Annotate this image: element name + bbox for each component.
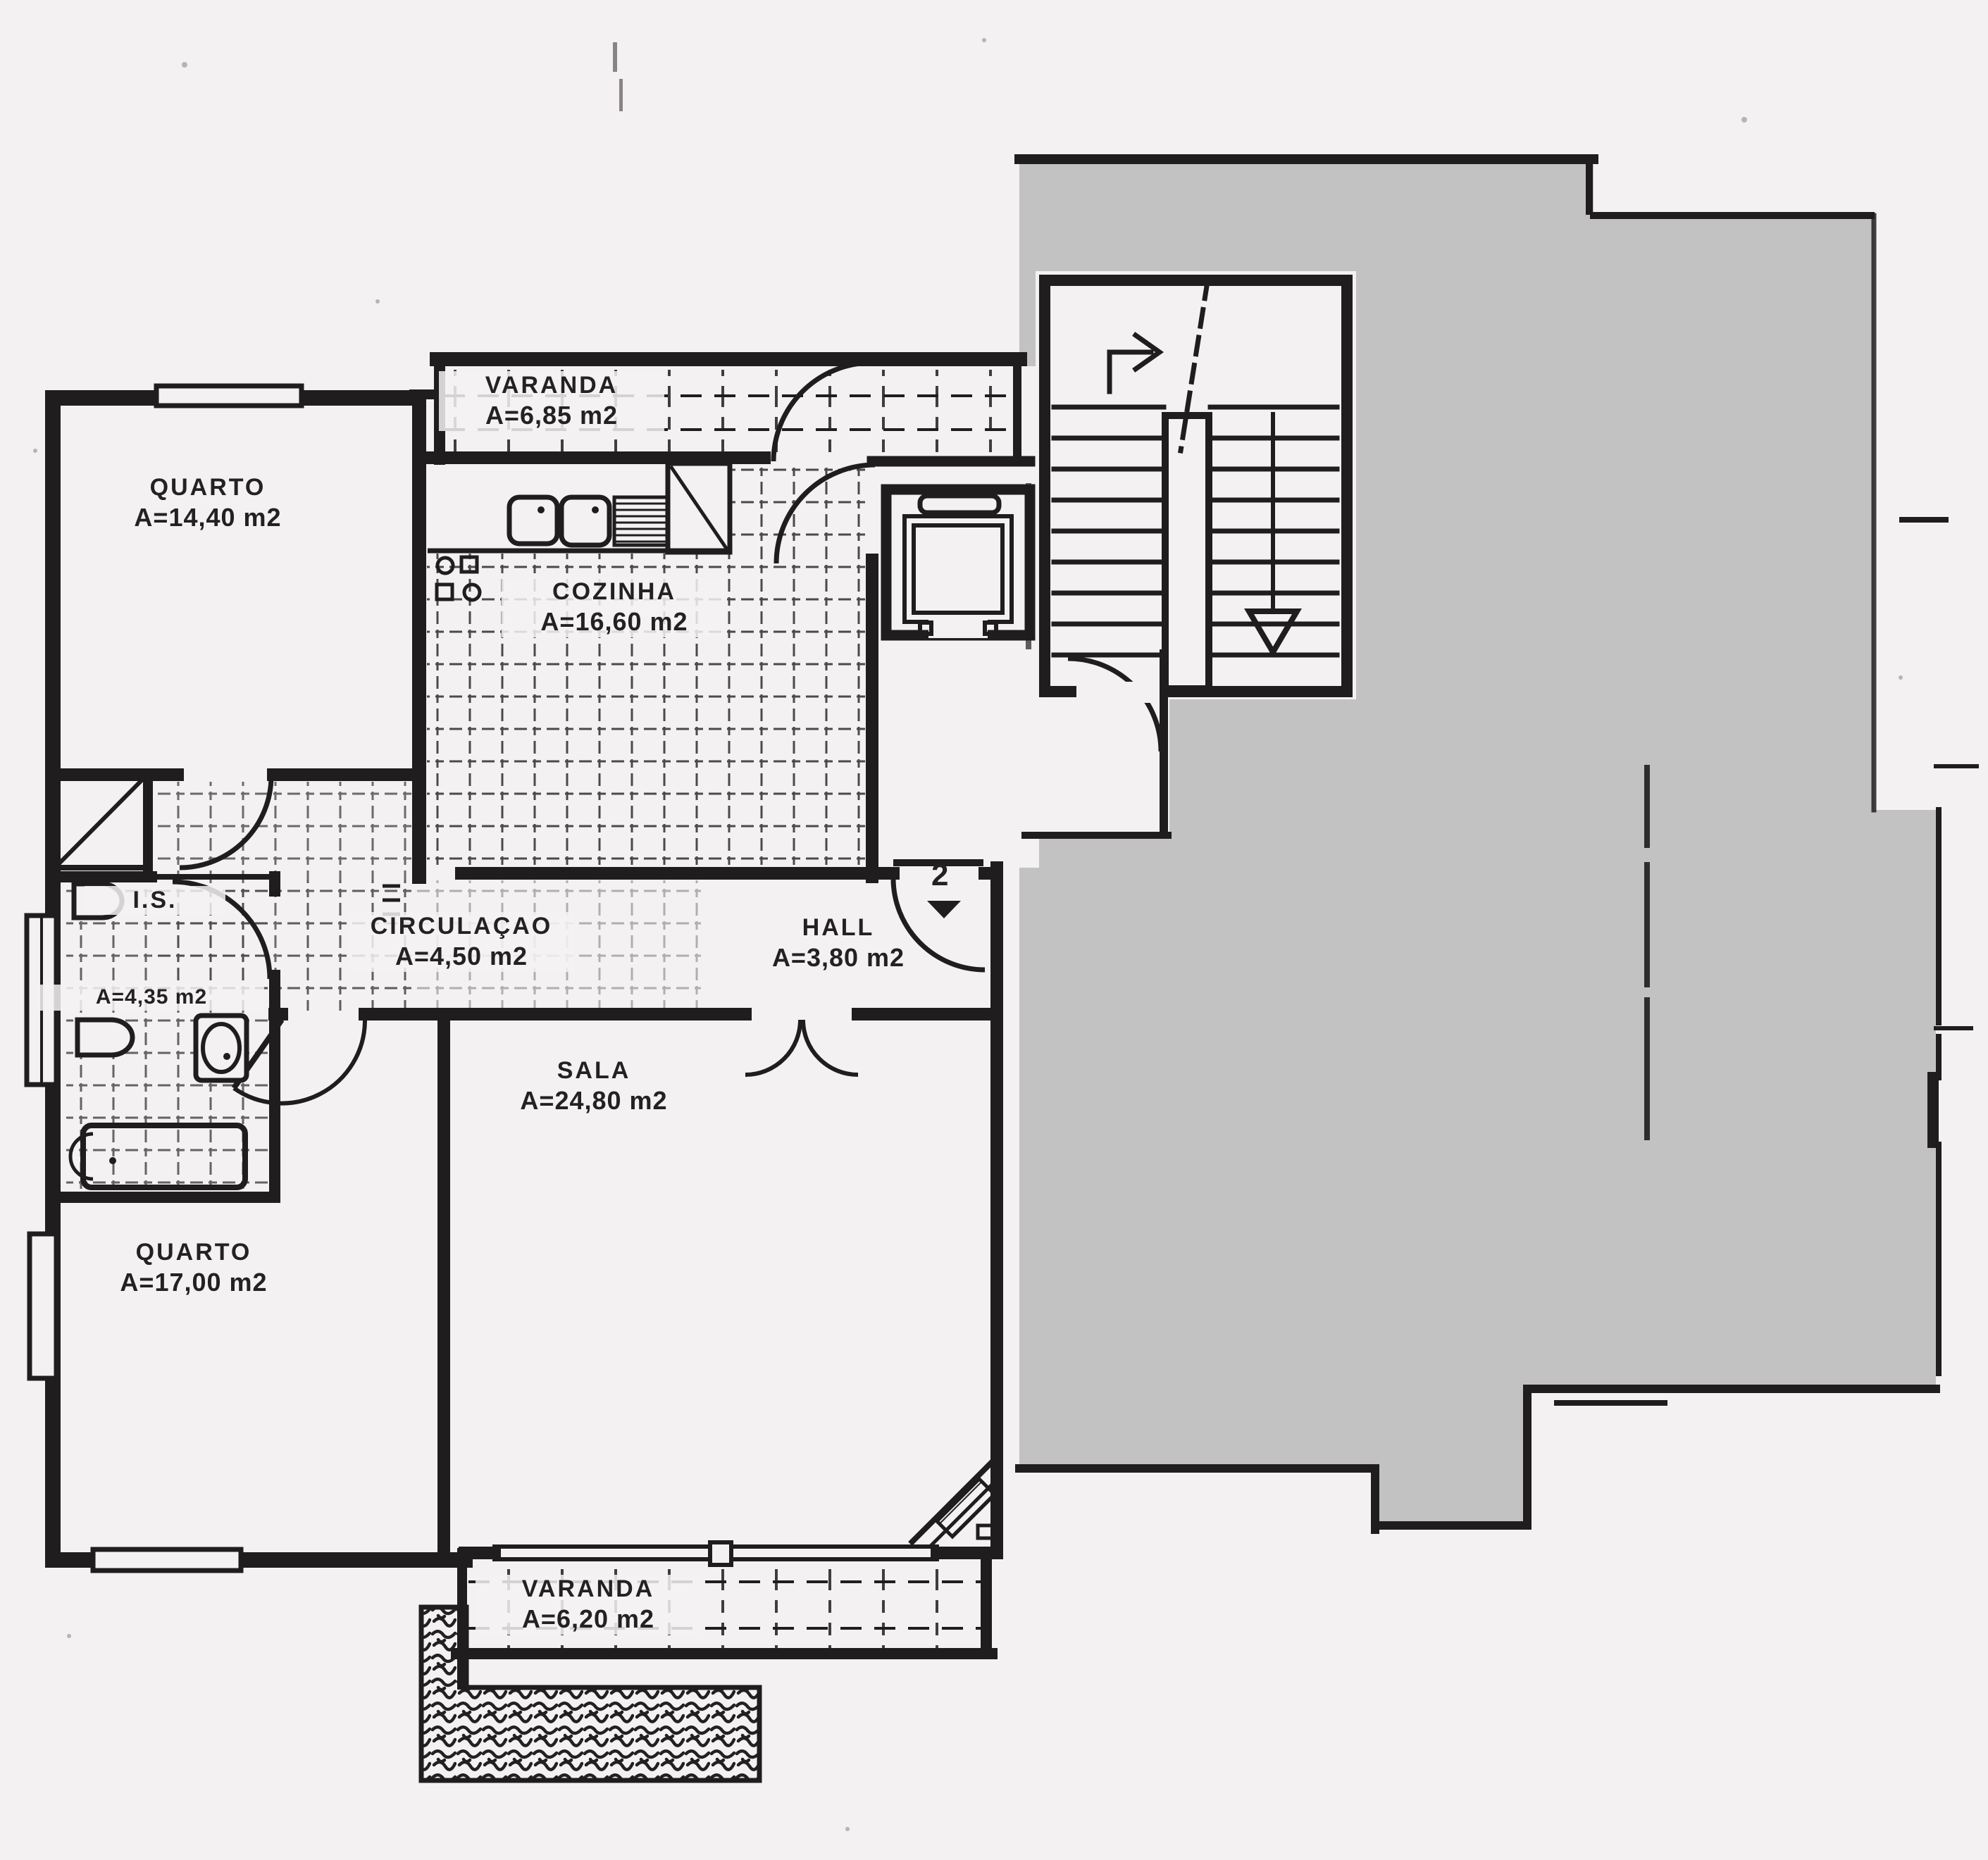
apartment-number: 2 xyxy=(931,858,948,893)
floor-plan-canvas xyxy=(0,0,1988,1860)
floor-plan-page: QUARTO A=14,40 m2 VARANDA A=6,85 m2 COZI… xyxy=(0,0,1988,1860)
sala-window-divider xyxy=(710,1542,731,1565)
